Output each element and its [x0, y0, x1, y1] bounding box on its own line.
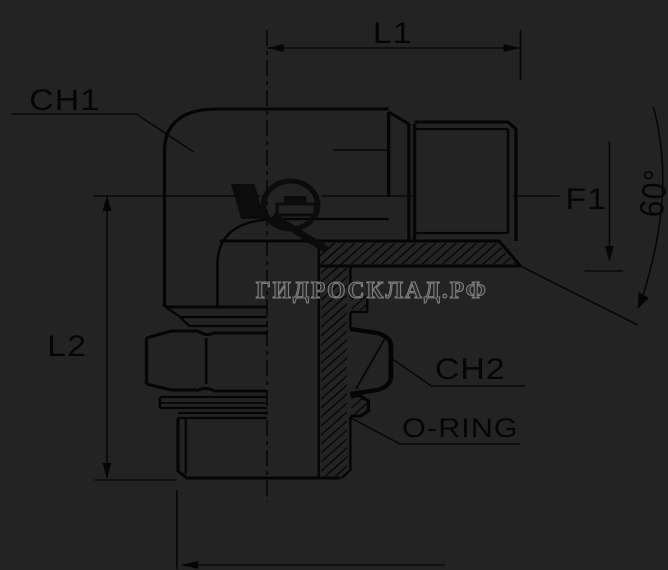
washer	[160, 397, 267, 408]
top-stud-thread-lines	[333, 129, 508, 233]
label-l1: L1	[373, 16, 413, 50]
label-f1: F1	[566, 182, 608, 216]
drawing-canvas: ГИДРОСКЛАД.РФ L1 CH1 F1 L2 CH2 O-RING 60…	[0, 0, 668, 570]
label-angle: 60°	[632, 167, 668, 219]
swivel-nut	[146, 331, 267, 391]
label-ch2: CH2	[435, 352, 506, 386]
label-oring: O-RING	[402, 414, 519, 444]
drawing-group: ГИДРОСКЛАД.РФ L1 CH1 F1 L2 CH2 O-RING 60…	[11, 16, 668, 569]
watermark-text: ГИДРОСКЛАД.РФ	[256, 276, 488, 303]
label-l2: L2	[47, 329, 87, 363]
dimension-bottom	[177, 490, 445, 569]
locknut-ch2	[350, 329, 391, 394]
label-ch1: CH1	[29, 83, 100, 117]
fitting-drawing: ГИДРОСКЛАД.РФ L1 CH1 F1 L2 CH2 O-RING 60…	[0, 0, 668, 570]
bottom-thread	[178, 413, 340, 478]
body-neck-steps	[166, 307, 269, 326]
dimension-l2	[93, 196, 414, 480]
